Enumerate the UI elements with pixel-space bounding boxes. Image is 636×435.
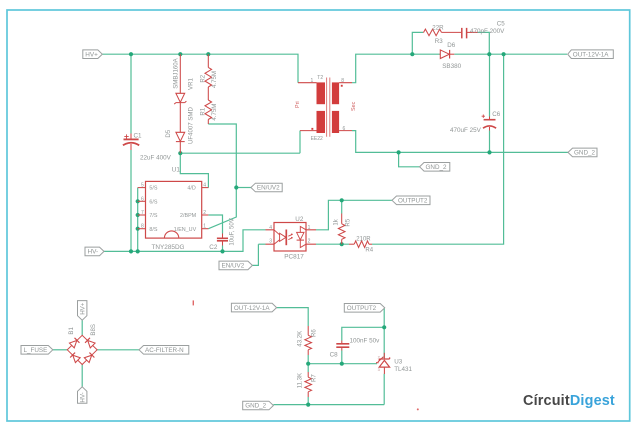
svg-text:T2: T2: [317, 75, 323, 81]
svg-text:4/D: 4/D: [187, 186, 195, 192]
svg-text:EE22: EE22: [311, 136, 323, 142]
svg-text:HV-: HV-: [88, 249, 99, 256]
svg-text:1/EN_UV: 1/EN_UV: [174, 227, 197, 233]
svg-text:HV+: HV+: [79, 302, 86, 315]
svg-text:8/S: 8/S: [149, 227, 157, 233]
svg-text:R2: R2: [200, 74, 207, 82]
svg-text:5/S: 5/S: [149, 186, 157, 192]
svg-text:VR1: VR1: [188, 78, 195, 90]
svg-text:10uF, 50V: 10uF, 50V: [229, 217, 236, 245]
svg-text:U3: U3: [394, 358, 403, 365]
svg-text:470pF 200V: 470pF 200V: [470, 28, 505, 35]
svg-text:TNY285DG: TNY285DG: [152, 244, 185, 251]
svg-text:GND_2: GND_2: [426, 164, 447, 171]
svg-text:1: 1: [311, 78, 314, 84]
svg-text:U1: U1: [172, 167, 181, 174]
svg-text:6: 6: [141, 196, 144, 202]
svg-text:C5: C5: [497, 21, 505, 28]
svg-text:R3: R3: [435, 38, 443, 45]
svg-text:C8: C8: [330, 351, 339, 358]
svg-text:SMBJ160A: SMBJ160A: [173, 57, 180, 88]
svg-text:R6: R6: [311, 329, 318, 337]
svg-text:3: 3: [269, 238, 272, 244]
svg-text:7: 7: [141, 210, 144, 216]
svg-text:470uF 25V: 470uF 25V: [450, 127, 482, 134]
svg-text:R7: R7: [311, 374, 318, 382]
svg-text:4.75M: 4.75M: [211, 104, 218, 121]
svg-text:3: 3: [378, 368, 380, 372]
svg-text:EN/UV2: EN/UV2: [222, 263, 245, 270]
svg-text:U2: U2: [295, 216, 304, 223]
svg-text:GND_2: GND_2: [574, 150, 595, 157]
svg-text:OUTPUT2: OUTPUT2: [347, 305, 377, 312]
svg-text:6: 6: [343, 126, 346, 132]
svg-text:8: 8: [341, 78, 344, 84]
svg-text:Sec: Sec: [351, 101, 357, 111]
svg-text:GND_2: GND_2: [245, 403, 266, 410]
svg-text:L_FUSE: L_FUSE: [24, 347, 48, 354]
svg-text:4: 4: [203, 183, 206, 189]
svg-text:22uF 400V: 22uF 400V: [140, 154, 172, 161]
svg-text:UF4007 SMD: UF4007 SMD: [188, 106, 195, 144]
svg-text:2: 2: [378, 355, 380, 359]
svg-text:C2: C2: [209, 244, 218, 251]
svg-text:CírcuitDigest: CírcuitDigest: [523, 393, 615, 409]
svg-text:EN/UV2: EN/UV2: [257, 185, 280, 192]
svg-text:43.2K: 43.2K: [296, 331, 303, 347]
svg-text:4.75M: 4.75M: [211, 71, 218, 88]
svg-text:210R: 210R: [356, 236, 371, 242]
svg-text:R1: R1: [200, 107, 207, 115]
svg-text:OUT-12V-1A: OUT-12V-1A: [234, 305, 270, 312]
svg-text:TL431: TL431: [394, 366, 412, 373]
svg-text:2/BPM: 2/BPM: [180, 213, 197, 219]
svg-text:1: 1: [203, 224, 206, 230]
svg-text:B8S: B8S: [90, 324, 97, 336]
svg-text:HV-: HV-: [79, 392, 86, 402]
svg-text:HV+: HV+: [85, 51, 98, 58]
svg-text:SB380: SB380: [442, 63, 461, 70]
svg-text:C1: C1: [134, 133, 143, 140]
svg-text:D5: D5: [165, 129, 172, 137]
svg-text:R5: R5: [345, 218, 352, 226]
svg-text:4: 4: [269, 225, 272, 231]
svg-text:2: 2: [203, 210, 206, 216]
svg-text:PC817: PC817: [284, 254, 304, 261]
svg-text:1k: 1k: [333, 218, 340, 225]
svg-text:1: 1: [308, 225, 311, 231]
svg-text:7/S: 7/S: [149, 213, 157, 219]
svg-text:B1: B1: [68, 327, 75, 335]
svg-text:8: 8: [141, 224, 144, 230]
svg-text:OUTPUT2: OUTPUT2: [398, 198, 428, 205]
svg-text:11.3K: 11.3K: [296, 373, 303, 388]
svg-text:OUT-12V-1A: OUT-12V-1A: [573, 51, 609, 58]
svg-text:R4: R4: [365, 248, 373, 254]
svg-text:D6: D6: [447, 42, 455, 49]
svg-text:22R: 22R: [432, 25, 444, 32]
svg-text:AC-FILTER-N: AC-FILTER-N: [145, 347, 184, 354]
svg-text:100nF 50v: 100nF 50v: [350, 338, 381, 345]
svg-text:Pri: Pri: [295, 101, 301, 108]
svg-text:6/S: 6/S: [149, 199, 157, 205]
svg-text:2: 2: [308, 238, 311, 244]
svg-text:5: 5: [141, 183, 144, 189]
svg-text:C6: C6: [492, 111, 500, 118]
